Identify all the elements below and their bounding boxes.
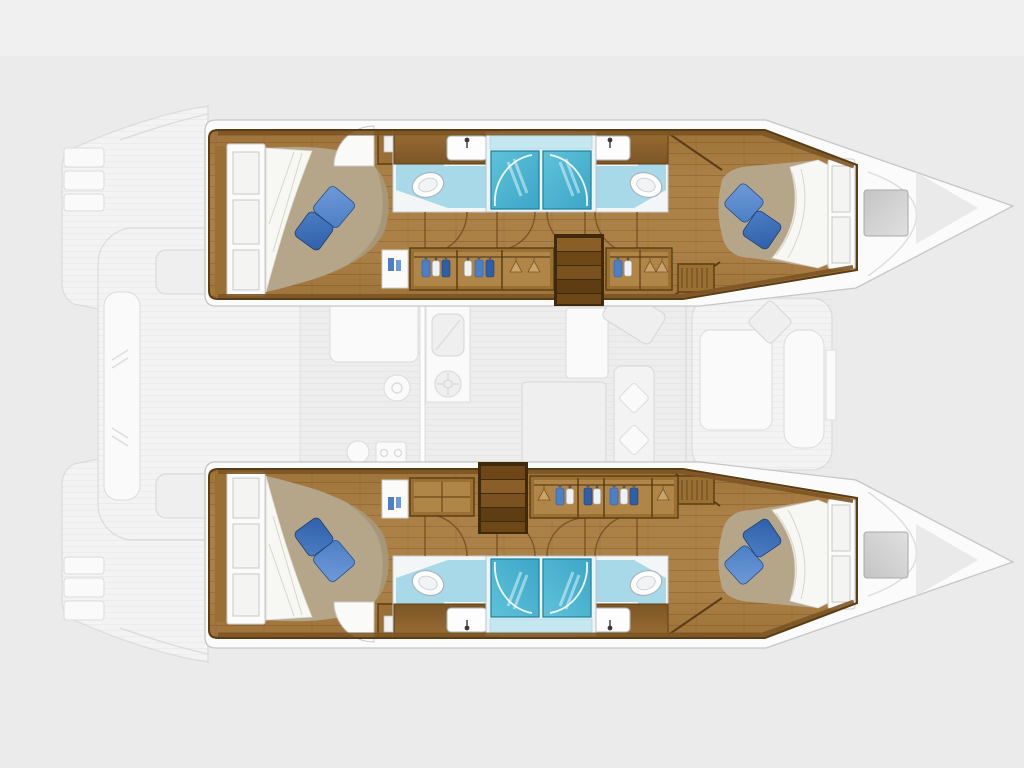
cockpit-bench bbox=[104, 292, 140, 500]
floorplan-svg bbox=[0, 0, 1024, 768]
forward-cockpit-ghost bbox=[692, 298, 836, 470]
companionway-stairs bbox=[478, 462, 528, 534]
lounge-pad bbox=[700, 330, 772, 430]
salon-table bbox=[522, 382, 606, 470]
wardrobe-long bbox=[530, 476, 678, 518]
wardrobe-fwd bbox=[606, 248, 672, 290]
companionway-stairs bbox=[554, 234, 604, 306]
forebeam bbox=[826, 350, 836, 420]
wardrobe-aft bbox=[410, 248, 554, 290]
top-light-band bbox=[0, 0, 1024, 56]
salon-seat bbox=[566, 308, 608, 378]
mast-post bbox=[420, 296, 425, 466]
corridor-cabinet bbox=[410, 478, 474, 516]
salon-ghost bbox=[300, 286, 708, 472]
galley-sink2-icon bbox=[347, 441, 369, 463]
lounge-bench bbox=[784, 330, 824, 448]
galley-sink-icon bbox=[384, 375, 410, 401]
catamaran-floorplan-image bbox=[0, 0, 1024, 768]
